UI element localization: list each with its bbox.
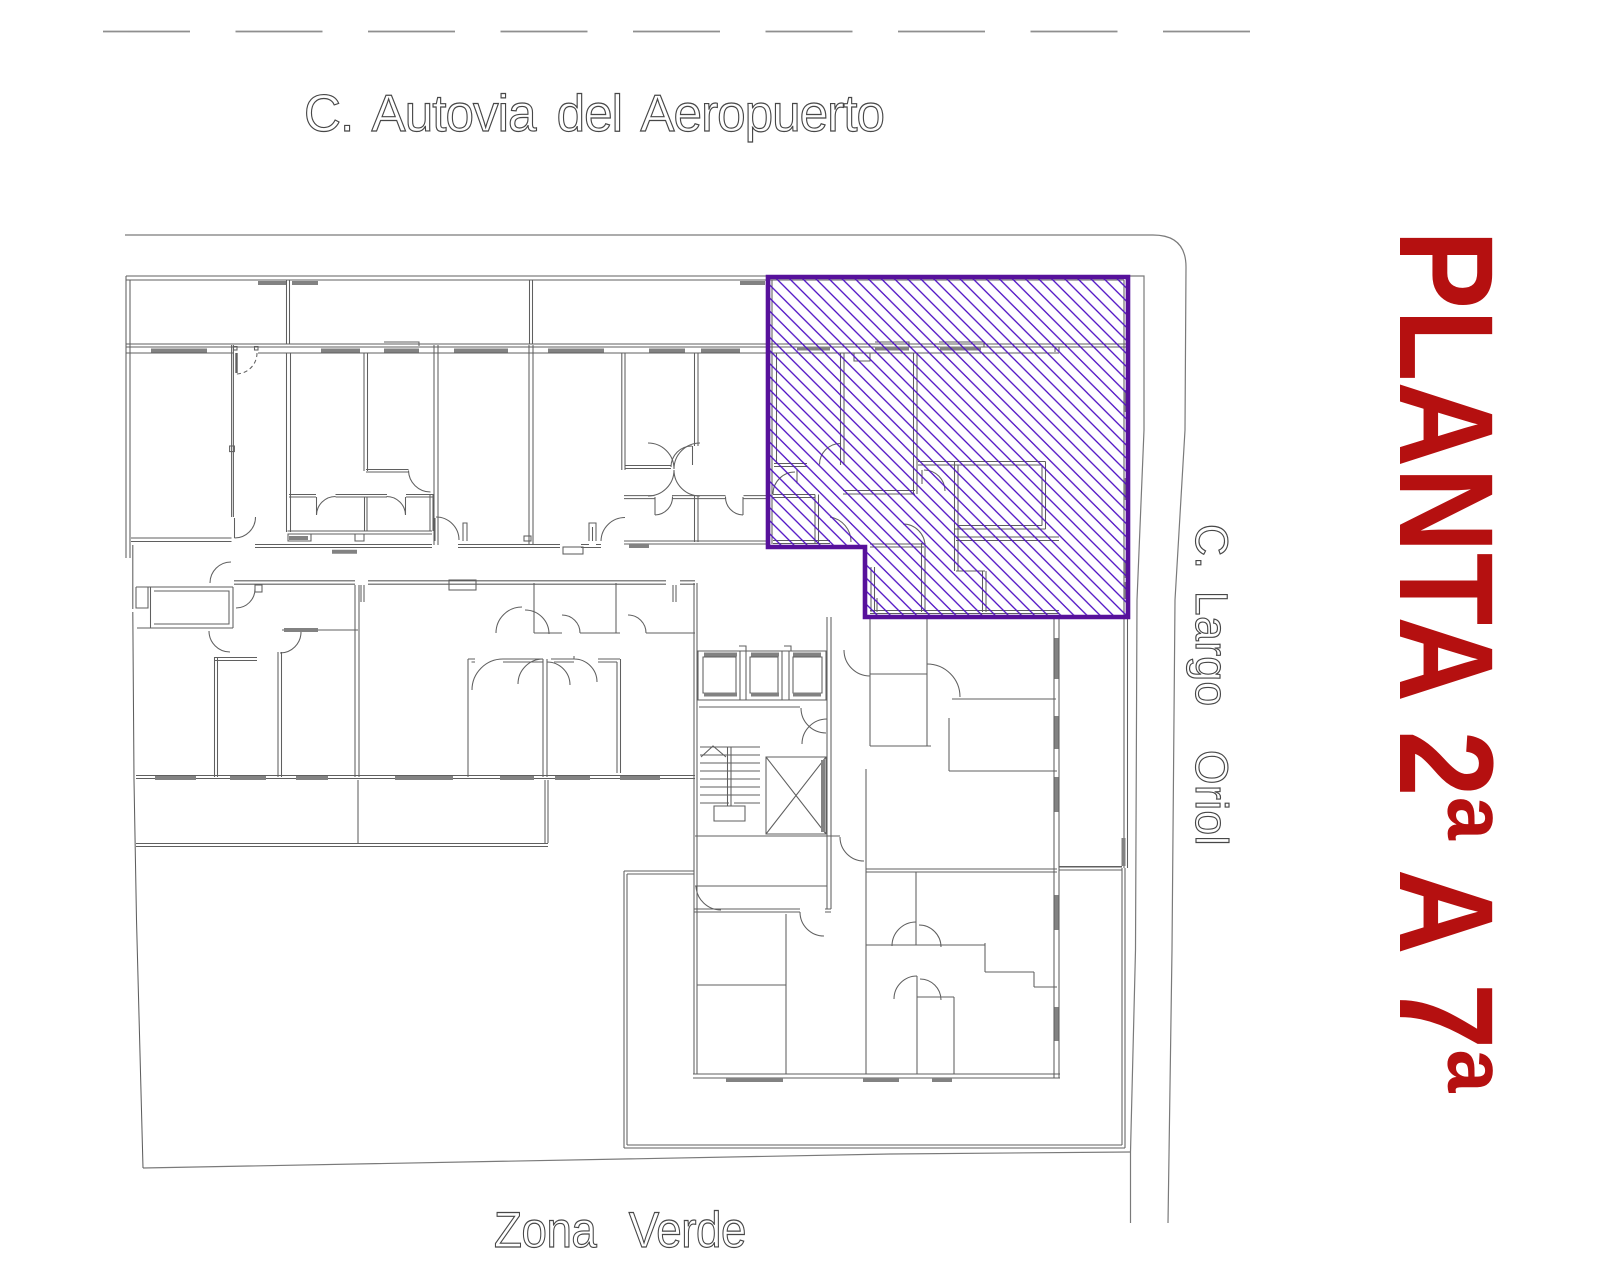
- svg-text:C. Largo Oriol: C. Largo Oriol: [1186, 524, 1237, 846]
- svg-text:PLANTA 2ª A 7ª: PLANTA 2ª A 7ª: [1371, 230, 1521, 1093]
- svg-text:Zona Verde: Zona Verde: [494, 1202, 746, 1258]
- svg-text:C. Autovia del Aeropuerto: C. Autovia del Aeropuerto: [304, 85, 884, 143]
